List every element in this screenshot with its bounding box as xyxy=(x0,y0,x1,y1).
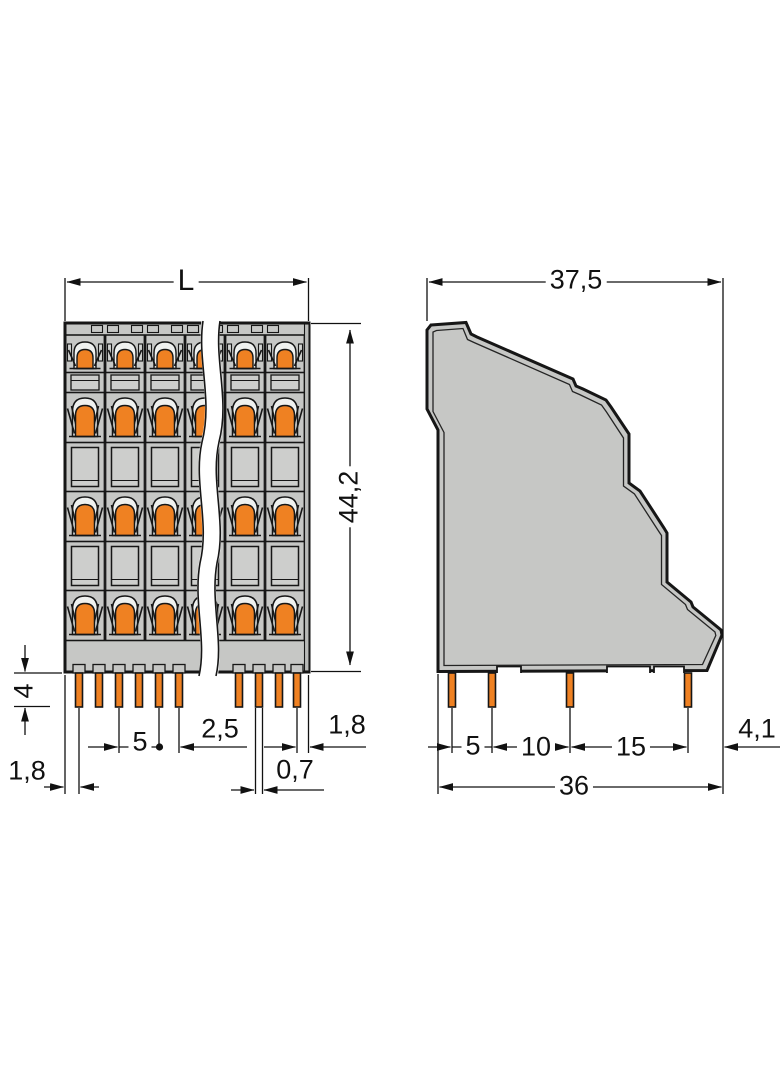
dim-label-depth-37-5: 37,5 xyxy=(546,267,607,294)
front-view xyxy=(65,316,309,707)
dim-label-pair-2-5: 2,5 xyxy=(197,716,243,743)
dim-label-side-15: 15 xyxy=(612,734,650,761)
dim-label-edge-right-1-8: 1,8 xyxy=(324,712,370,739)
terminal-block-drawing xyxy=(0,0,784,1066)
dim-label-side-10: 10 xyxy=(517,734,555,761)
dim-label-pin-width-0-7: 0,7 xyxy=(272,757,318,784)
side-view xyxy=(427,323,722,708)
dim-label-side-4-1: 4,1 xyxy=(734,716,780,743)
dim-label-height-44-2: 44,2 xyxy=(336,467,363,528)
front-right-edge-strip xyxy=(305,324,310,671)
side-body-outline xyxy=(427,323,722,672)
dim-label-length-L: L xyxy=(174,266,199,296)
dim-label-side-36: 36 xyxy=(555,773,593,800)
side-pins xyxy=(449,673,692,707)
technical-drawing-page: L 44,2 4 1,8 5 2,5 0,7 1,8 37,5 5 10 15 … xyxy=(0,0,784,1066)
dim-label-pin-length-4: 4 xyxy=(11,679,38,702)
dim-label-edge-left-1-8: 1,8 xyxy=(4,758,50,785)
dim-label-pitch-5: 5 xyxy=(128,729,151,756)
dim-label-side-5: 5 xyxy=(461,733,484,760)
